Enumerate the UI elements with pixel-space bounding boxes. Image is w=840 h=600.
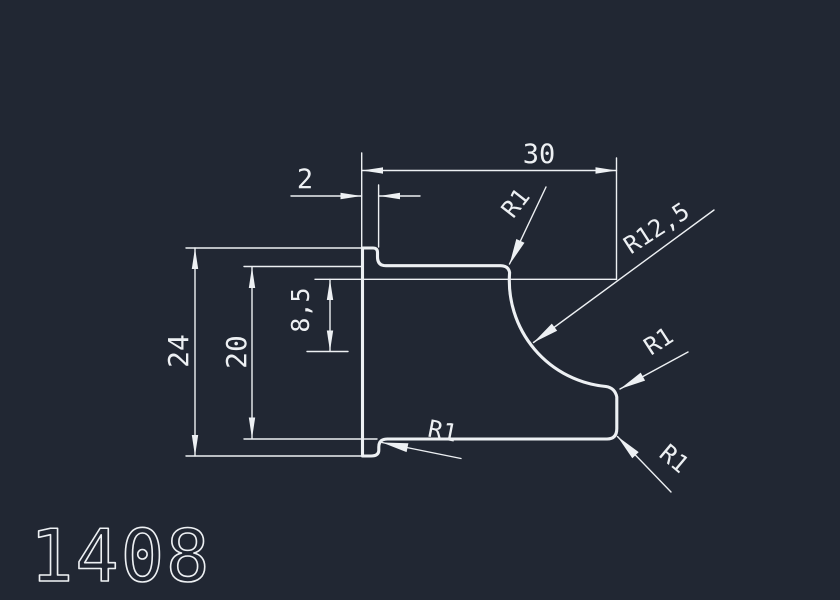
cad-canvas: 1408 30 2 24 20 8,5 bbox=[0, 0, 840, 600]
dim-text-2: 2 bbox=[297, 164, 313, 195]
dim-text-8-5: 8,5 bbox=[286, 287, 315, 332]
part-number: 1408 bbox=[30, 514, 211, 598]
dim-text-24: 24 bbox=[162, 334, 195, 368]
drawing-background bbox=[0, 0, 840, 600]
radius-text-r1-bottom-left: R1 bbox=[426, 415, 460, 448]
dim-text-30: 30 bbox=[523, 139, 556, 170]
cad-drawing-viewport[interactable]: 1408 30 2 24 20 8,5 bbox=[0, 0, 840, 600]
dim-text-20: 20 bbox=[220, 335, 253, 369]
